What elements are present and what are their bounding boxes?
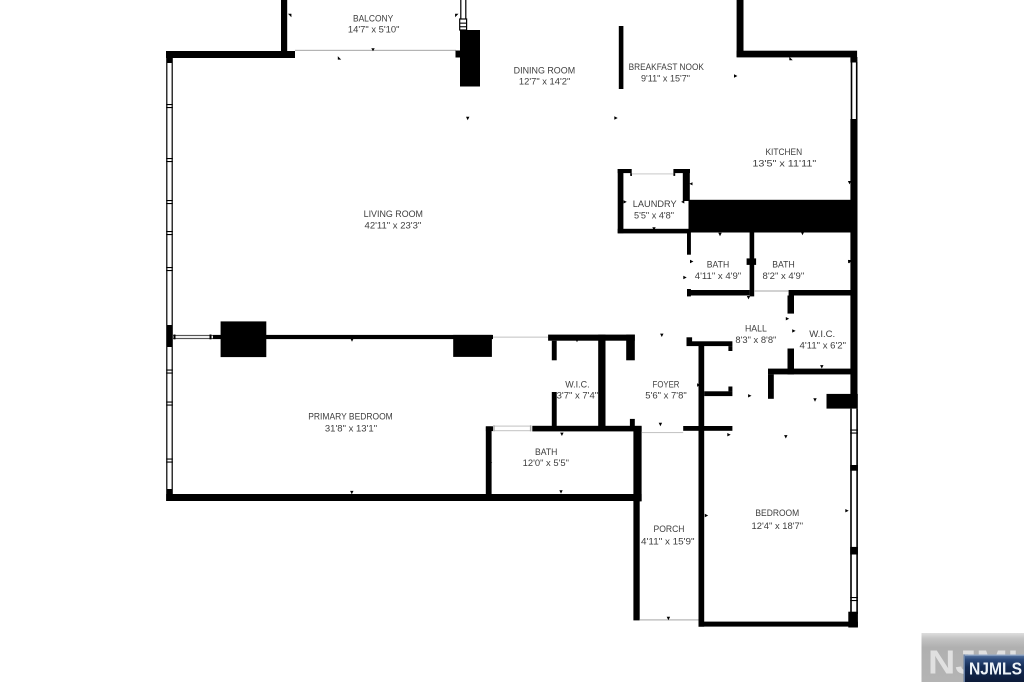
svg-text:4'11" x 6'2": 4'11" x 6'2" [800, 341, 847, 352]
svg-text:9'11" x 15'7": 9'11" x 15'7" [641, 74, 690, 85]
svg-text:BREAKFAST NOOK: BREAKFAST NOOK [629, 62, 705, 73]
svg-text:W.I.C.: W.I.C. [809, 329, 835, 340]
svg-text:DINING ROOM: DINING ROOM [514, 65, 576, 76]
svg-text:KITCHEN: KITCHEN [766, 147, 803, 158]
svg-text:13'5" x 11'11": 13'5" x 11'11" [752, 159, 816, 170]
svg-text:BATH: BATH [772, 260, 795, 271]
svg-text:31'8" x 13'1": 31'8" x 13'1" [325, 423, 377, 434]
svg-text:W.I.C.: W.I.C. [565, 380, 589, 391]
svg-text:4'11" x 4'9": 4'11" x 4'9" [695, 271, 741, 282]
svg-text:8'3" x 8'8": 8'3" x 8'8" [735, 335, 776, 346]
svg-text:BATH: BATH [707, 260, 730, 271]
svg-text:BATH: BATH [535, 447, 558, 458]
svg-text:PRIMARY BEDROOM: PRIMARY BEDROOM [308, 412, 393, 423]
svg-text:42'11" x 23'3": 42'11" x 23'3" [365, 221, 422, 232]
svg-text:PORCH: PORCH [654, 524, 685, 535]
svg-text:BALCONY: BALCONY [353, 13, 394, 24]
svg-text:LAUNDRY: LAUNDRY [633, 199, 677, 210]
svg-text:12'4" x 18'7": 12'4" x 18'7" [752, 521, 804, 532]
svg-text:5'6" x 7'8": 5'6" x 7'8" [645, 390, 687, 401]
svg-text:4'11" x 15'9": 4'11" x 15'9" [641, 537, 695, 548]
svg-text:12'0" x 5'5": 12'0" x 5'5" [523, 458, 569, 469]
svg-text:12'7" x 14'2": 12'7" x 14'2" [519, 76, 570, 87]
svg-text:BEDROOM: BEDROOM [755, 508, 799, 519]
svg-text:5'5" x 4'8": 5'5" x 4'8" [634, 211, 674, 222]
svg-text:14'7" x 5'10": 14'7" x 5'10" [348, 24, 400, 35]
svg-text:HALL: HALL [745, 324, 767, 335]
svg-text:FOYER: FOYER [653, 380, 680, 391]
svg-text:NJMLS: NJMLS [969, 659, 1022, 679]
svg-text:8'2" x 4'9": 8'2" x 4'9" [763, 271, 805, 282]
svg-text:LIVING ROOM: LIVING ROOM [364, 209, 423, 220]
svg-text:3'7" x 7'4": 3'7" x 7'4" [557, 390, 599, 401]
